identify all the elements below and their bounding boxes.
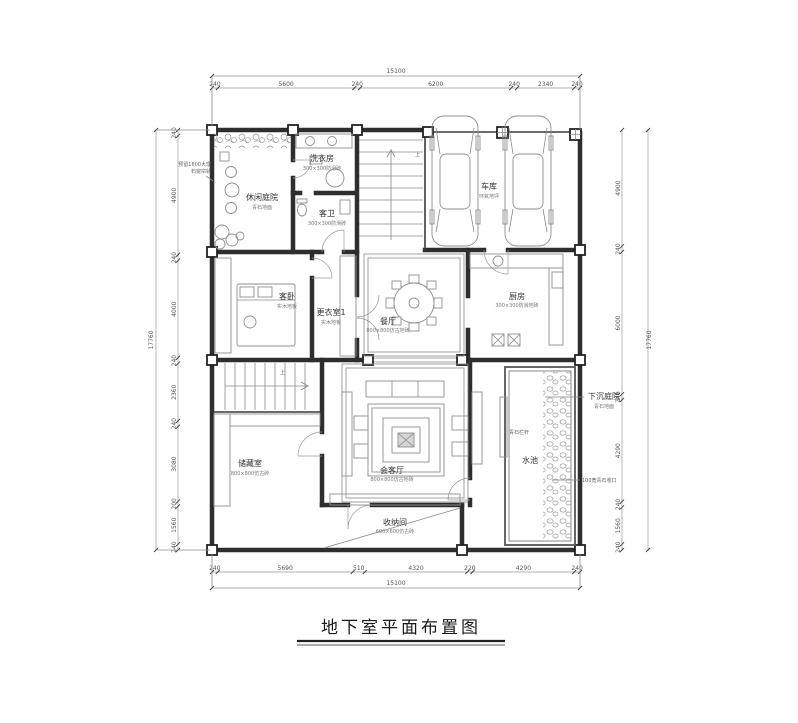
structural-columns	[207, 125, 585, 555]
svg-text:5690: 5690	[278, 565, 293, 572]
sofa	[366, 381, 444, 397]
svg-text:240: 240	[209, 81, 221, 88]
closet-shelving	[340, 256, 356, 356]
svg-text:240: 240	[615, 391, 622, 403]
sink	[493, 256, 503, 266]
fridge	[552, 272, 563, 288]
svg-text:2340: 2340	[538, 81, 553, 88]
garage-column	[570, 129, 581, 140]
room-sub-guest-bath: 300×300防滑砖	[308, 220, 346, 227]
stone-edge-note: 100宽青石收口	[582, 477, 617, 484]
svg-text:4000: 4000	[171, 301, 178, 316]
svg-text:5600: 5600	[278, 81, 293, 88]
drawing-sheet: 休闲庭院 青石地面 洗衣房 300×300防滑砖 客卫 300×300防滑砖 客…	[0, 0, 798, 723]
up-label-top: 上	[415, 151, 420, 158]
room-label-pool: 水池	[522, 455, 538, 465]
svg-text:240: 240	[615, 243, 622, 255]
svg-text:240: 240	[615, 499, 622, 511]
svg-text:220: 220	[464, 565, 476, 572]
armchair	[452, 416, 468, 430]
dim-top-segments: 240560024062002402340240	[209, 81, 583, 90]
toilet	[298, 204, 307, 216]
room-sub-sunken-courtyard: 青石地面	[594, 403, 614, 410]
dim-left-total-text: 17760	[148, 330, 155, 349]
dim-left-segments: 24049002404000240236024030802001560240	[171, 127, 180, 553]
svg-text:2360: 2360	[171, 384, 178, 399]
room-label-storage-room: 储藏室	[238, 458, 262, 468]
basin	[340, 200, 350, 214]
svg-text:3080: 3080	[171, 456, 178, 471]
dim-bottom-segments: 240569051043202204290240	[209, 565, 583, 574]
svg-text:1560: 1560	[615, 518, 622, 533]
svg-text:240: 240	[571, 565, 583, 572]
room-label-reception: 会客厅	[380, 465, 404, 475]
media-console	[342, 392, 352, 476]
svg-text:4320: 4320	[408, 565, 423, 572]
svg-text:510: 510	[353, 565, 365, 572]
svg-text:240: 240	[171, 541, 178, 553]
svg-text:240: 240	[171, 127, 178, 139]
dim-top-total-text: 15100	[386, 68, 405, 75]
room-sub-storage-room: 800×800仿古砖	[231, 470, 269, 477]
svg-text:240: 240	[171, 418, 178, 430]
room-label-dressing-room: 更衣室1	[316, 307, 345, 317]
room-sub-dressing-room: 实木地板	[321, 319, 341, 326]
room-label-laundry: 洗衣房	[310, 153, 334, 163]
upper-stairs	[359, 140, 423, 240]
svg-text:240: 240	[352, 81, 364, 88]
svg-text:4290: 4290	[615, 443, 622, 458]
svg-text:4900: 4900	[615, 180, 622, 195]
counter	[470, 254, 563, 268]
room-sub-storage-closet: 600×600仿古砖	[376, 528, 414, 535]
dim-left-total: 17760	[148, 128, 210, 552]
dressing-room-furniture	[340, 256, 356, 356]
room-label-leisure-courtyard: 休闲庭院	[246, 192, 278, 202]
room-label-garage: 车库	[481, 181, 497, 191]
storage-room-shelving	[214, 414, 320, 506]
feature-wall	[472, 392, 482, 464]
sunken-courtyard	[500, 367, 584, 545]
up-label-bottom: 上	[280, 369, 285, 376]
svg-text:6000: 6000	[615, 315, 622, 330]
svg-text:240: 240	[171, 355, 178, 367]
svg-text:4900: 4900	[171, 187, 178, 202]
lower-stairs	[225, 363, 308, 410]
car	[503, 116, 553, 246]
room-sub-kitchen: 300×300防滑地砖	[495, 302, 538, 309]
planting-bed	[214, 132, 291, 148]
svg-text:240: 240	[571, 81, 583, 88]
svg-text:240: 240	[171, 252, 178, 264]
room-sub-guest-bedroom: 实木地板	[277, 303, 297, 310]
svg-text:200: 200	[171, 498, 178, 510]
dim-right-total: 17760	[646, 128, 653, 552]
leisure-courtyard-furniture	[214, 132, 291, 249]
car	[430, 116, 480, 246]
dim-right-segments: 4900240600024042902401560240	[615, 128, 624, 553]
room-label-storage-closet: 收纳间	[383, 517, 407, 527]
svg-text:240: 240	[508, 81, 520, 88]
stone-bench	[500, 397, 507, 457]
dim-bottom-total-text: 15100	[386, 580, 405, 587]
svg-text:240: 240	[209, 565, 221, 572]
garage-cars	[430, 116, 553, 246]
dim-right-total-text: 17760	[646, 330, 653, 349]
room-label-guest-bedroom: 客卧	[279, 291, 295, 301]
svg-text:6200: 6200	[428, 81, 443, 88]
floor-plan-svg: 休闲庭院 青石地面 洗衣房 300×300防滑砖 客卫 300×300防滑砖 客…	[0, 0, 798, 723]
curtain-note-line2: 石窗帘轨	[191, 168, 211, 175]
svg-text:240: 240	[615, 541, 622, 553]
room-sub-laundry: 300×300防滑砖	[303, 165, 341, 172]
svg-text:4290: 4290	[516, 565, 531, 572]
svg-text:1560: 1560	[171, 517, 178, 532]
room-sub-garage: 环氧地坪	[479, 193, 499, 200]
room-sub-leisure-courtyard: 青石地面	[252, 204, 272, 211]
room-sub-dining: 800×800仿古地砖	[366, 327, 409, 334]
room-label-kitchen: 厨房	[509, 291, 525, 301]
railing-note: 青石栏杆	[509, 429, 529, 436]
dim-top-total: 15100	[210, 68, 582, 130]
drawing-title: 地下室平面布置图	[321, 618, 481, 638]
curtain-note-line1: 预留1800大理	[178, 161, 211, 168]
armchair	[452, 442, 468, 456]
title-block: 地下室平面布置图	[297, 618, 505, 645]
room-label-dining: 餐厅	[380, 317, 396, 326]
wardrobe	[215, 258, 231, 353]
dining-furniture	[364, 254, 464, 356]
room-sub-reception: 800×800仿古地砖	[370, 476, 413, 483]
room-label-guest-bath: 客卫	[319, 208, 335, 218]
